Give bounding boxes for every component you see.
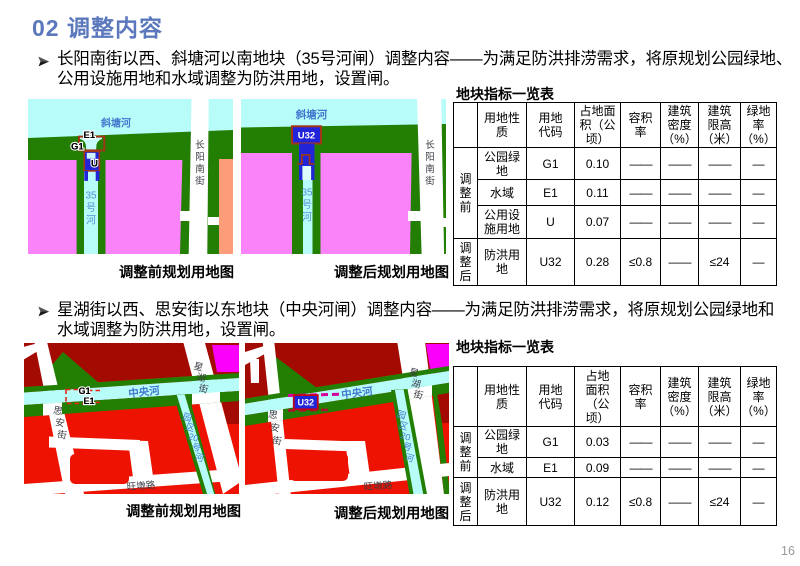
- svg-text:河: 河: [86, 215, 96, 227]
- svg-text:长: 长: [425, 139, 435, 151]
- svg-text:长: 长: [195, 139, 205, 151]
- svg-text:35: 35: [301, 188, 313, 199]
- svg-text:号: 号: [302, 199, 312, 211]
- svg-text:南: 南: [195, 163, 205, 175]
- svg-text:街: 街: [425, 175, 435, 187]
- svg-text:E1: E1: [84, 396, 95, 406]
- svg-text:斜塘河: 斜塘河: [295, 108, 328, 121]
- svg-text:南: 南: [425, 163, 435, 175]
- svg-text:E1: E1: [84, 130, 96, 141]
- svg-text:35: 35: [85, 191, 97, 202]
- svg-text:阳: 阳: [425, 152, 435, 163]
- svg-text:河: 河: [302, 212, 312, 224]
- svg-text:G1: G1: [71, 142, 84, 153]
- svg-text:街: 街: [195, 175, 205, 187]
- svg-text:旺墩路: 旺墩路: [126, 479, 156, 493]
- svg-text:旺墩路: 旺墩路: [363, 479, 393, 493]
- svg-text:G1: G1: [79, 386, 91, 396]
- svg-text:斜塘河: 斜塘河: [100, 117, 131, 130]
- svg-text:号: 号: [86, 202, 96, 214]
- svg-text:U: U: [91, 159, 98, 170]
- svg-text:U32: U32: [298, 398, 315, 408]
- svg-text:U32: U32: [298, 131, 315, 142]
- svg-text:阳: 阳: [195, 152, 205, 163]
